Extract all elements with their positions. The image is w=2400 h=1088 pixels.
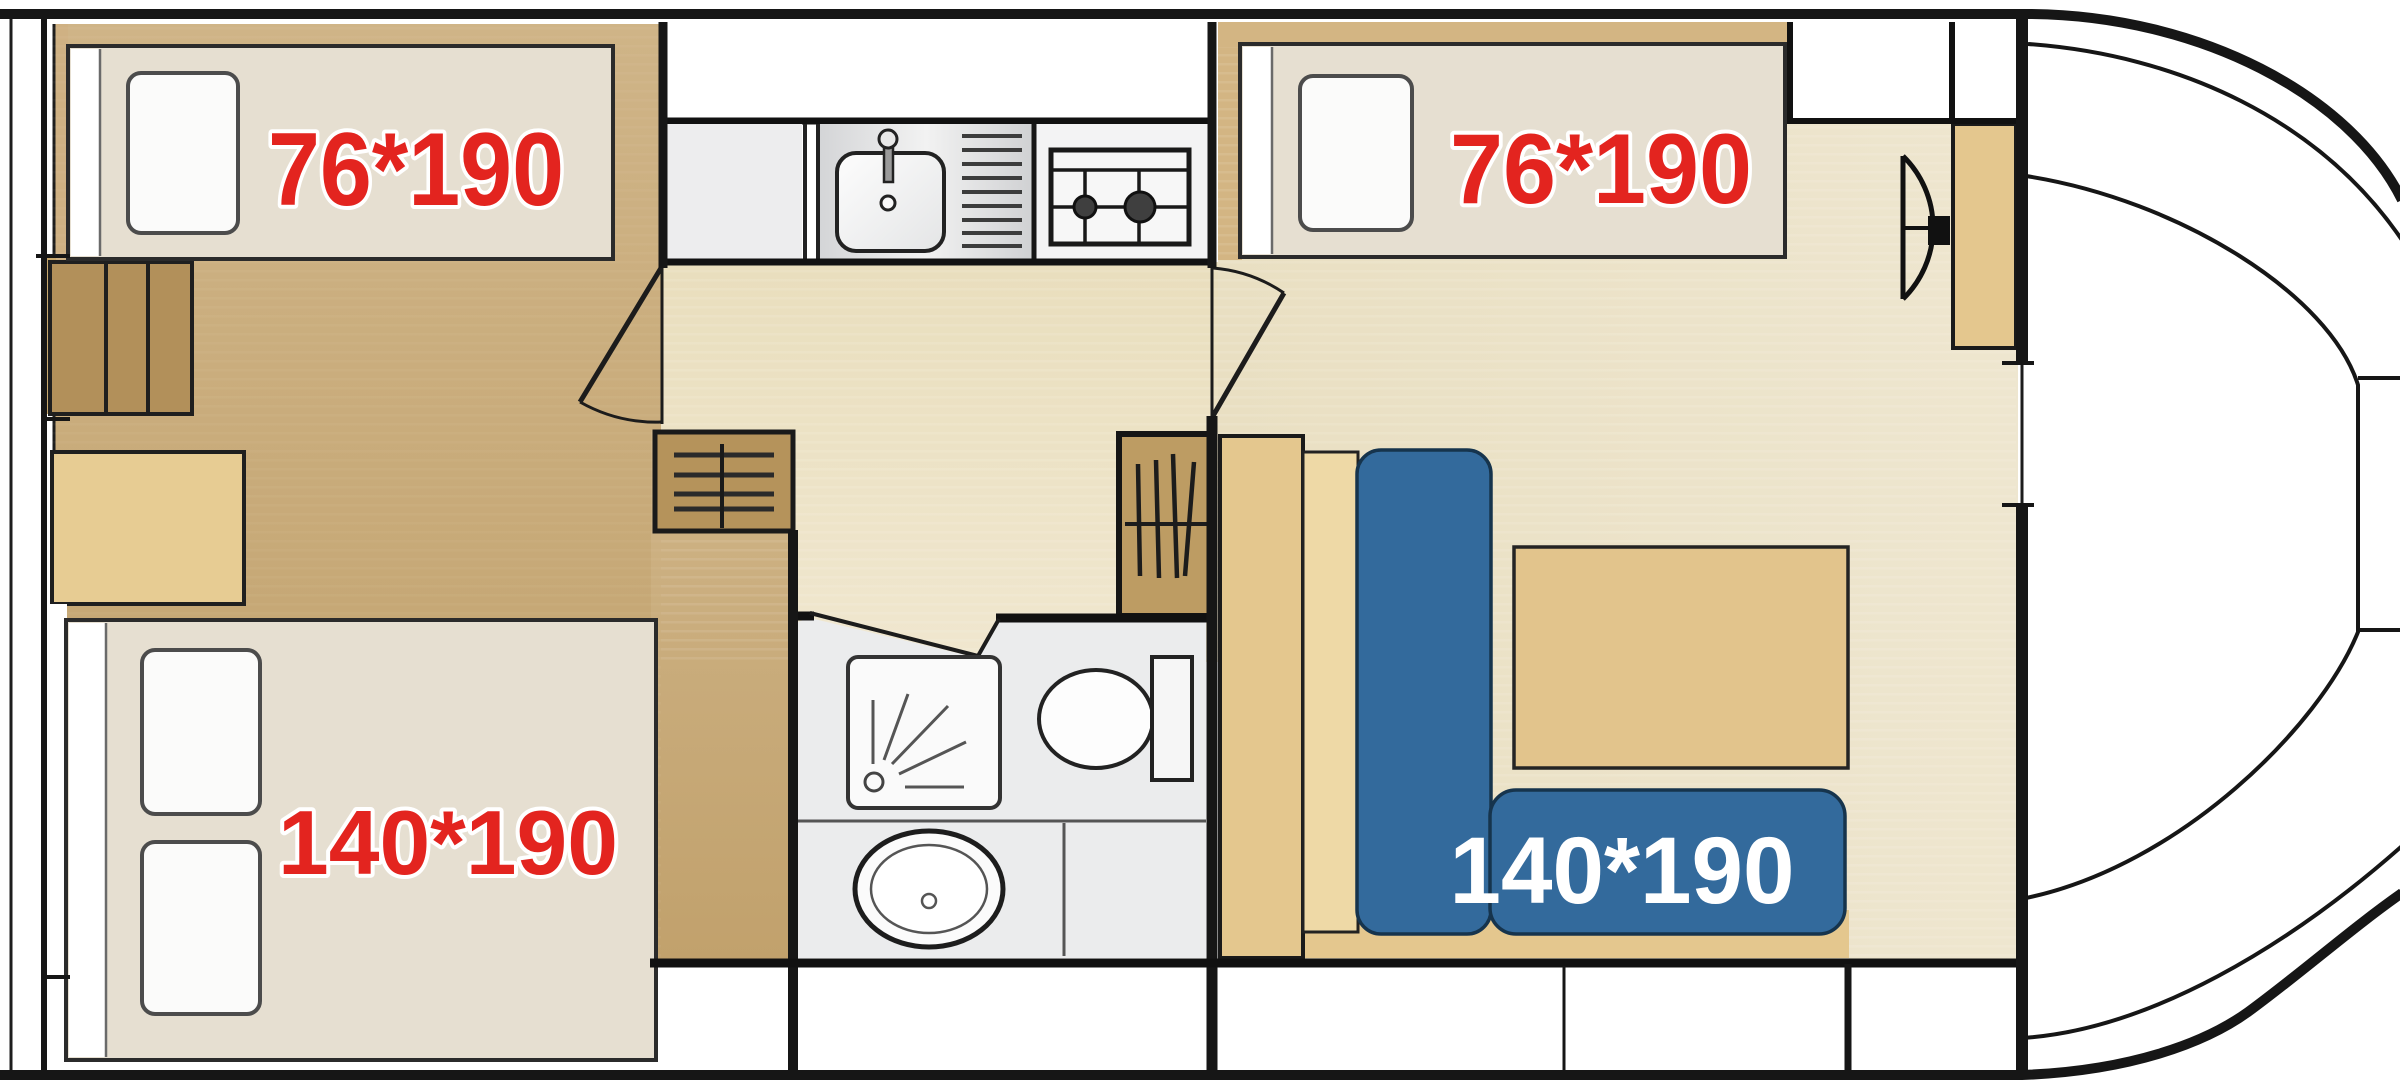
svg-text:140*190: 140*190	[278, 793, 618, 894]
svg-text:76*190: 76*190	[268, 112, 564, 228]
svg-text:140*190: 140*190	[1450, 818, 1795, 924]
svg-text:76*190: 76*190	[1450, 113, 1752, 224]
